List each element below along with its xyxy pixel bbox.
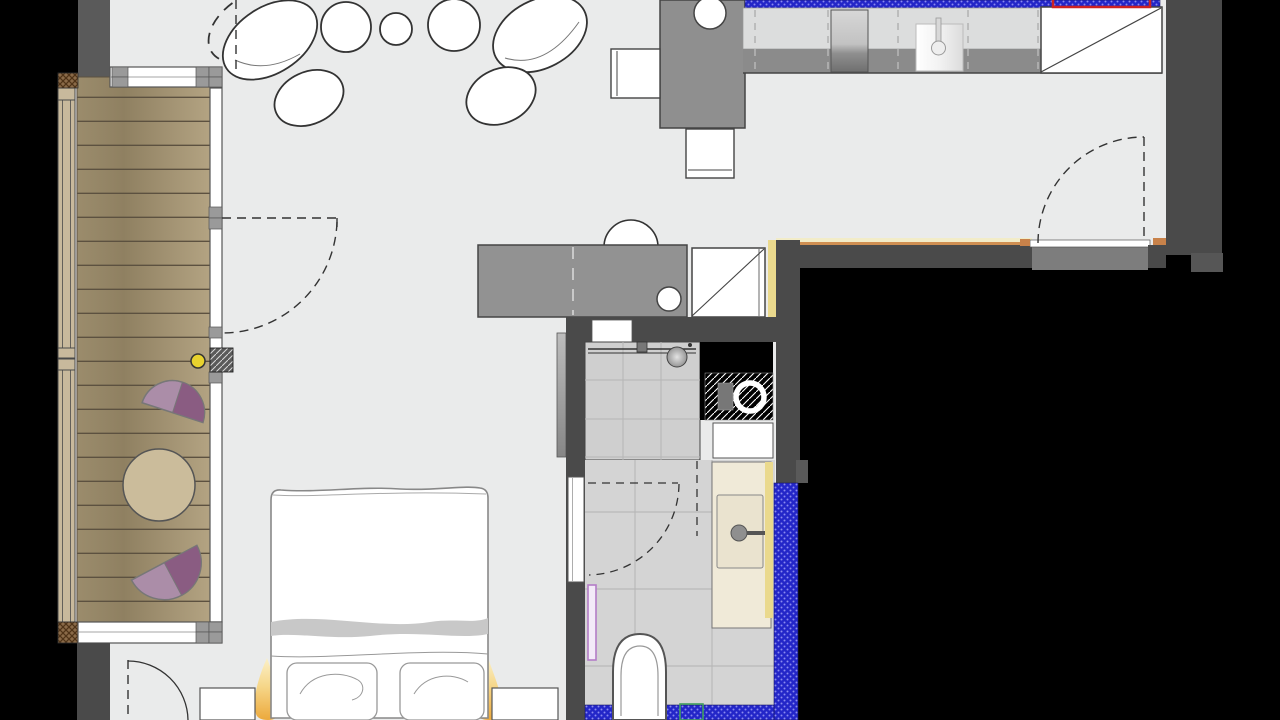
wall-stub-hatched-bottom [58,622,78,643]
entry-wall-horizontal [776,245,1032,268]
island-appliance[interactable] [692,248,765,317]
pebble [321,2,371,52]
kitchen-counter[interactable] [743,8,1041,49]
deck-table[interactable] [123,449,195,521]
entry-wall-right [1166,0,1222,255]
mullion [209,372,222,383]
canister-knob [932,41,946,55]
mullion [209,632,222,643]
shaft-duct [718,383,733,410]
mullion [209,67,222,77]
balcony-window-top [110,67,222,87]
mullion [209,218,222,229]
exterior-left [0,0,58,720]
kitchen [743,0,1162,73]
pillow-left [287,663,377,720]
mullion [196,622,209,632]
door-handle-knob[interactable] [191,354,205,368]
counter-canister[interactable] [916,18,963,71]
balcony-window-bottom [78,622,222,643]
entry-wall-foot [1191,253,1223,272]
shower-head [667,347,687,367]
wall-finish-cream [776,238,1032,242]
nightstand-right[interactable] [492,688,558,720]
slim-cabinet[interactable] [557,333,566,457]
wall-notch [796,460,808,483]
mullion [112,77,128,87]
rail-post [58,88,75,100]
kitchen-island[interactable] [478,245,687,317]
door-pier-hatched [210,348,233,372]
door-jamb-marker [1020,239,1030,246]
mullion [209,327,222,338]
kitchen-counter-edge [743,49,1041,73]
shower-door-hinge [637,342,647,352]
corridor-wall-vertical [776,240,800,483]
balcony [58,67,233,643]
nightstand-left[interactable] [200,688,255,720]
exterior-bottom-right [776,245,1280,720]
tall-fridge-unit[interactable] [1041,7,1162,73]
bathroom [557,317,798,720]
bathroom-door[interactable] [568,477,584,582]
island-sink [657,287,681,311]
towel-radiator[interactable] [588,585,596,660]
wall-stub-hatched-top [58,73,78,88]
washer-counter [713,423,773,458]
utility-shaft [700,342,773,420]
exterior-bottom-left [58,643,77,720]
dining-chair-bottom[interactable] [686,129,734,178]
wall-pier-top-left [78,0,110,77]
floor-plan-drawing [0,0,1280,720]
exterior-top-left [58,0,78,73]
vanity[interactable] [712,462,771,628]
entry-threshold [1030,240,1150,247]
floor-plan-canvas[interactable] [0,0,1280,720]
shower-valve [688,343,692,347]
mullion [209,622,222,632]
exterior-top-right [1221,0,1280,255]
deck-planks [77,77,210,622]
pebble [380,13,412,45]
sink-drain [731,525,747,541]
shower[interactable] [585,342,700,460]
entry-landing [1032,247,1148,270]
wall-finish-yellow-vertical [768,240,776,317]
toilet[interactable] [613,634,666,720]
mullion [196,632,209,643]
mullion [112,67,128,77]
wall-niche [592,320,632,342]
mullion [196,77,209,87]
double-bed[interactable] [271,487,488,720]
bedroom-wall-left [77,643,110,720]
new-wall-blue-right [774,483,798,720]
wall-finish-yellow-bath [765,462,773,618]
mullion [196,67,209,77]
mullion [209,77,222,87]
entry-wall-jamb [1148,245,1166,268]
pebble [428,0,480,51]
dining-chair-left[interactable] [611,49,660,98]
pillow-right [400,663,484,720]
door-jamb-marker [1153,238,1166,246]
faucet [747,531,767,535]
counter-appliance-cylinder[interactable] [831,10,868,72]
mullion [209,207,222,218]
table-bowl [694,0,726,29]
